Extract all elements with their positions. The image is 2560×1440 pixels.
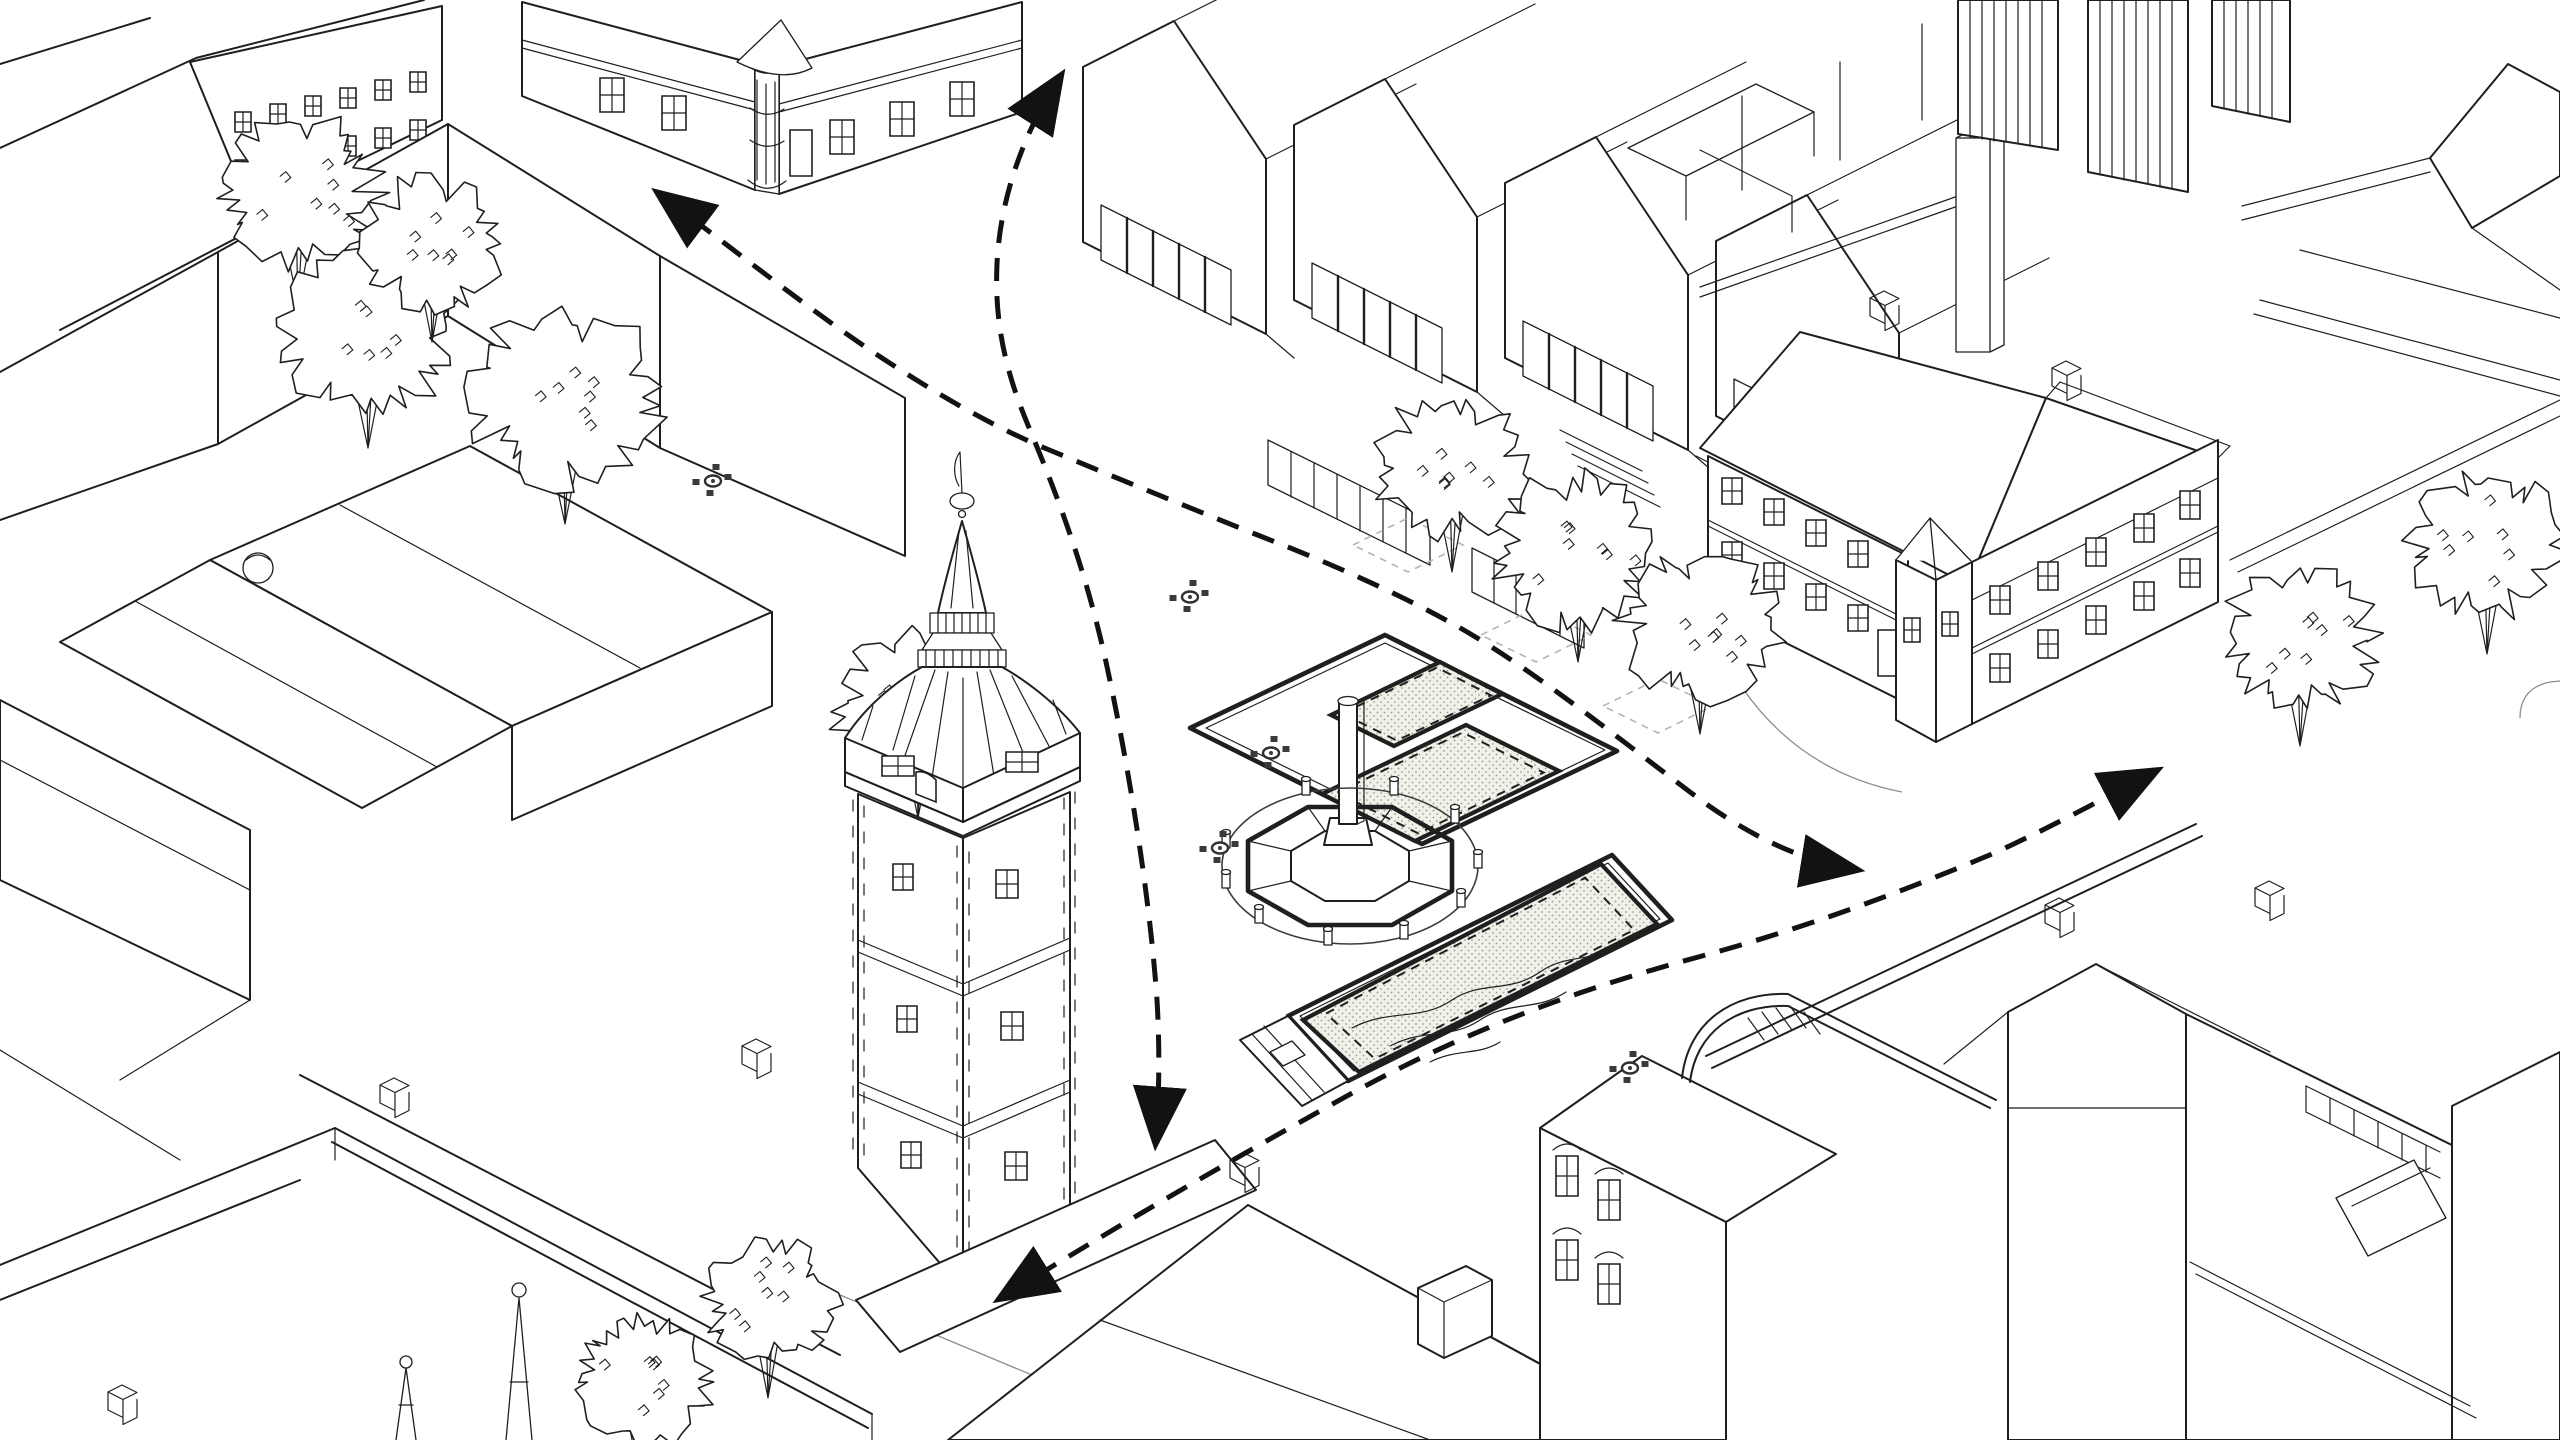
chair [1251,751,1258,757]
bollard [1451,805,1460,824]
bollard-top [1255,905,1264,910]
tree-canopy [2225,568,2383,708]
bollard-top [1302,777,1311,782]
bollard [1400,921,1409,940]
table-center [1269,751,1273,755]
bay-connector [1266,334,1294,358]
roof-eaves [0,1075,872,1428]
bollard-top [1222,870,1231,875]
chair [1214,857,1221,863]
water-squiggle [1430,1042,1500,1062]
service-wing-roof [1628,84,1814,176]
gable-house [2008,964,2186,1440]
chimney-cube [380,1078,409,1118]
trees-front [575,1237,843,1440]
spire-cone [938,521,986,613]
corner-building-right-facade [779,2,1022,194]
chair [1200,846,1207,852]
chair [693,479,700,485]
bollard-top [1474,850,1483,855]
pinnacle-spire-2 [506,1298,532,1440]
chimney-cube [2052,361,2081,401]
chair [713,464,720,470]
table-center [711,479,715,483]
chair [1190,580,1197,586]
table-center [1628,1066,1632,1070]
tree [700,1237,843,1398]
bollard-top [1390,777,1399,782]
corner-turret-nw-face [1896,560,1936,742]
chimney-cube [2255,881,2284,921]
bollard-top [1400,921,1409,926]
lower-roof [0,700,250,1000]
chair [1220,831,1227,837]
gable-roof-ne [2430,64,2560,228]
bollard [1255,905,1264,924]
cafe-table [1170,580,1209,612]
bollard-top [1457,889,1466,894]
plaza [1190,635,1672,1106]
town-tower [845,452,1080,1290]
rear-wall [660,256,905,556]
pinnacle-ball-1 [400,1356,412,1368]
tree-canopy [2402,471,2560,619]
bottom-right-block [1944,881,2560,1440]
bollard [1457,889,1466,908]
table-center [1188,595,1192,599]
corner-turret-se-face [1936,562,1972,742]
chair [1610,1066,1617,1072]
chimney-cube [108,1385,137,1425]
finial-knob [959,511,966,518]
bottom-left-block [0,1039,872,1440]
chair [1630,1051,1637,1057]
tree-canopy [700,1237,843,1359]
chair [1624,1077,1631,1083]
trees-right [2225,471,2560,746]
tall-chimney [1956,131,2004,352]
tree [2402,471,2560,654]
finial-ball [950,493,974,509]
chimney-cube [742,1039,771,1079]
drawing-canvas [0,0,2560,1440]
pinnacle-ball-2 [512,1283,526,1297]
bay-connector [1477,392,1505,416]
bollard [1390,777,1399,796]
chair [1642,1061,1649,1067]
chair [1232,841,1239,847]
bollard-top [1324,927,1333,932]
corner-building-left-facade [522,2,755,190]
column-shaft [1339,702,1357,824]
chair [1271,736,1278,742]
chair [725,474,732,480]
table-center [1218,846,1222,850]
chair [707,490,714,496]
slab-1 [1958,0,2058,150]
bollard [1222,870,1231,889]
chair [1170,595,1177,601]
bollard [1302,777,1311,796]
chair [1184,606,1191,612]
bollard [1474,850,1483,869]
column-capital [1338,697,1358,706]
bollard [1324,927,1333,946]
corner-building-door [790,130,812,176]
axonometric-town-square-drawing [0,0,2560,1440]
corner-building [522,2,1022,194]
chair [1283,746,1290,752]
slab-2 [2088,0,2188,192]
far-right-roof [2452,1052,2560,1440]
top-right-slabs [1958,0,2560,396]
tree-canopy [575,1313,714,1440]
finial-rod-and-vane [955,452,962,493]
chair [1202,590,1209,596]
bollard-top [1451,805,1460,810]
tree [2225,568,2383,746]
pinnacle-spire-1 [396,1368,416,1440]
chair [1265,762,1272,768]
corner-oriel-cone-roof [737,20,812,75]
curved-parapet [1682,994,1996,1108]
tree [575,1313,714,1440]
round-turret-top [243,553,273,583]
lantern-mid [922,633,1002,650]
